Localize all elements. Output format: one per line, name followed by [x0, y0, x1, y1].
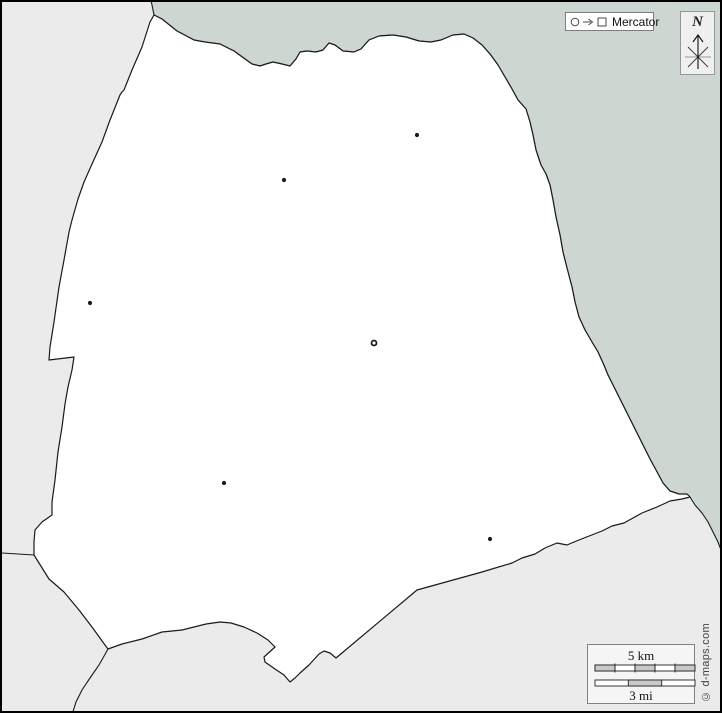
town-dot-marker — [88, 301, 92, 305]
square-projection-icon — [597, 17, 607, 27]
copyright-text: © d-maps.com — [700, 623, 716, 702]
scale-km-label: 5 km — [588, 649, 694, 662]
town-dot-marker — [222, 481, 226, 485]
compass: N — [680, 11, 715, 75]
projection-legend: Mercator — [565, 12, 654, 31]
projection-label: Mercator — [610, 16, 659, 28]
map-canvas — [2, 2, 722, 713]
scale-mi-label: 3 mi — [588, 689, 694, 702]
town-dot-marker — [415, 133, 419, 137]
sphere-icon — [570, 17, 580, 27]
capital-ring-marker — [372, 341, 377, 346]
map-image: Mercator N 5 km 3 mi — [0, 0, 722, 713]
arrow-right-icon — [583, 17, 594, 27]
compass-north-label: N — [692, 14, 703, 31]
scale-bar: 5 km 3 mi — [587, 644, 695, 704]
scale-bars-icon — [588, 663, 696, 689]
town-dot-marker — [488, 537, 492, 541]
compass-rose-icon — [683, 31, 713, 71]
town-dot-marker — [282, 178, 286, 182]
